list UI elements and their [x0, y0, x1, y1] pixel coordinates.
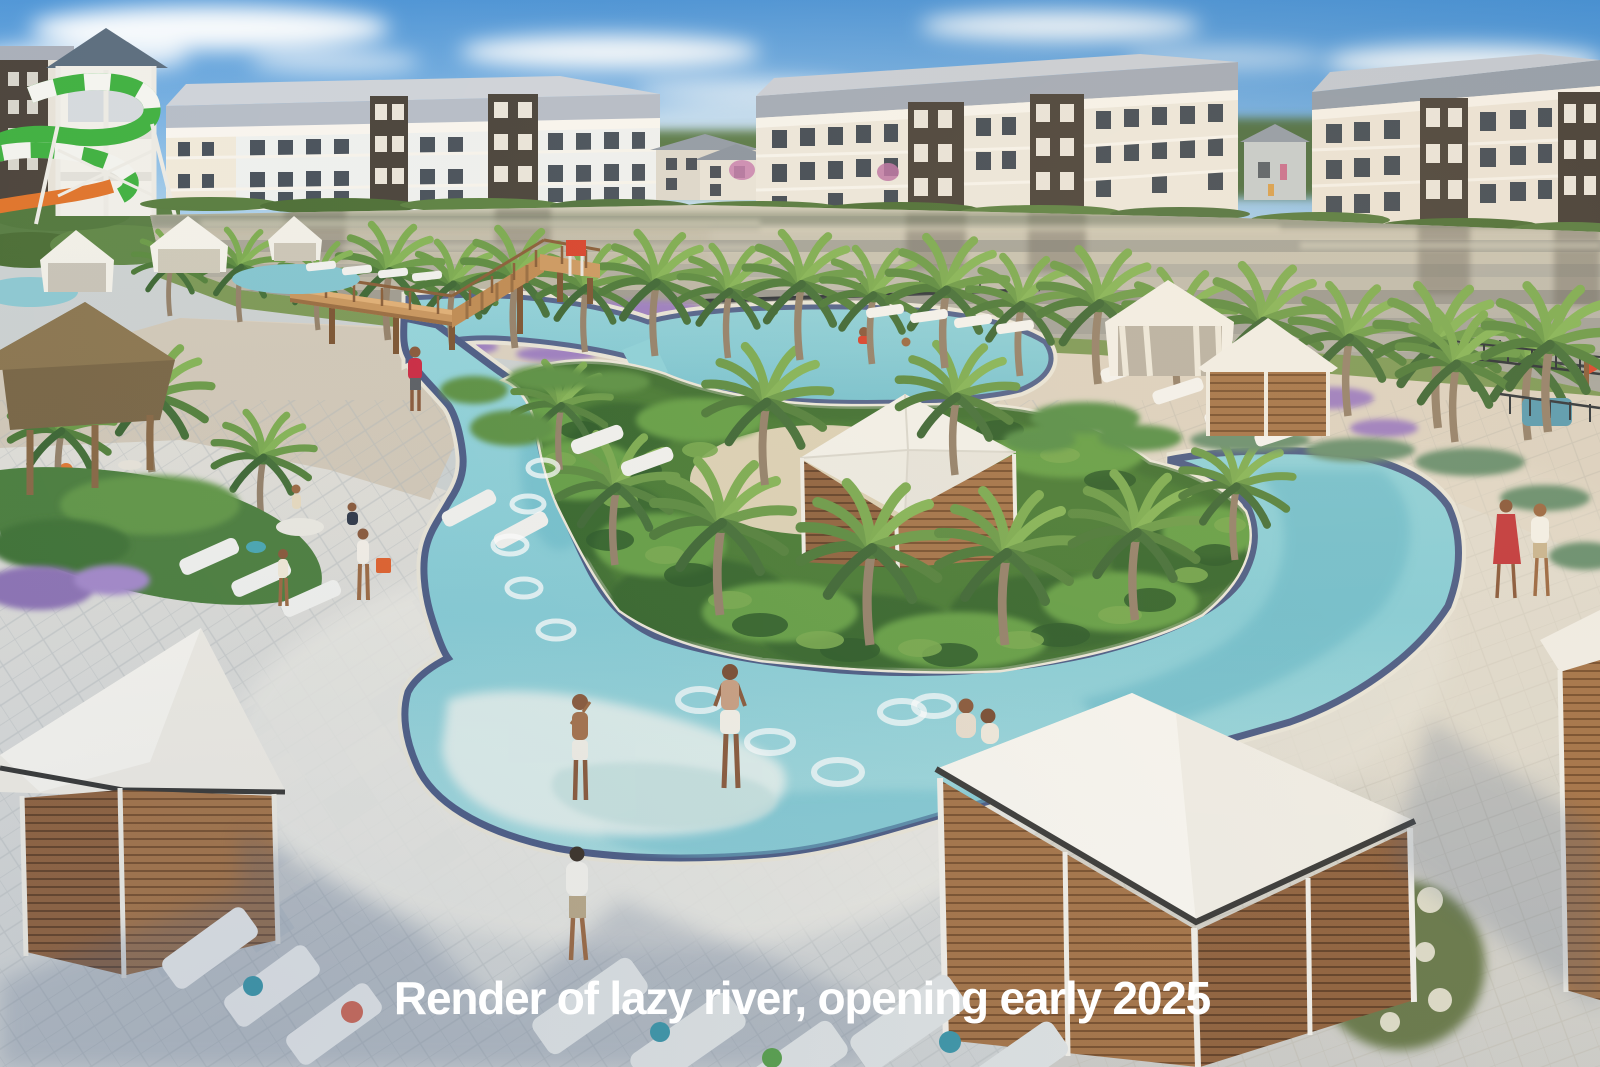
svg-text:Render of lazy river, opening: Render of lazy river, opening early 2025: [394, 972, 1211, 1024]
